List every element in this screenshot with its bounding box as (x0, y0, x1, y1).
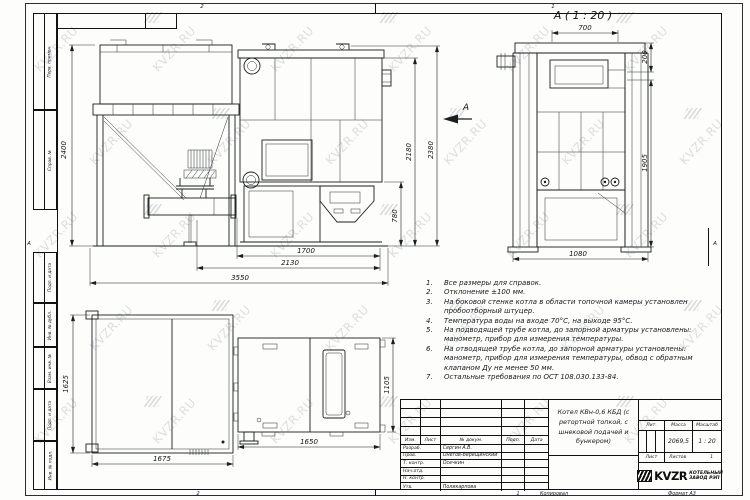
signature-row: Нач.отд. (401, 468, 548, 476)
dim-plan-bunker-height: 1625 (62, 375, 70, 393)
view-arrow: А (443, 103, 472, 124)
change-row (401, 418, 548, 427)
dim-body-height: 2180 (405, 143, 413, 161)
signature-row: Разраб.Сергин А.В. (401, 445, 548, 453)
mass-value: 2069,5 (665, 431, 693, 452)
role-label: Разраб. (401, 445, 441, 452)
change-row (401, 409, 548, 418)
note-text: На подводящей трубе котла, до запорной а… (444, 326, 706, 345)
role-label: Н. контр. (401, 476, 441, 483)
person-name: Осечкин (441, 460, 503, 467)
note-number: 4. (424, 317, 444, 326)
signature-header-row: Изм. Лист № докум. Подп. Дата (401, 436, 548, 445)
dim-detail-top-height: 200 (641, 50, 649, 64)
note-number: 2. (424, 288, 444, 297)
sheets-label: Листов (669, 455, 686, 460)
lit-cells (639, 431, 665, 452)
note-number: 1. (424, 279, 444, 288)
header-izm: Изм. (401, 436, 421, 444)
dim-mid-width: 2130 (281, 259, 299, 267)
note-item: 7.Остальные требования по ОСТ 108.030.13… (424, 373, 706, 382)
dim-bunker-height: 2400 (60, 141, 68, 159)
person-name: Сергин А.В. (441, 445, 503, 452)
role-label: Нач.отд. (401, 468, 441, 475)
sheet-row: Лист Листов 1 (639, 453, 721, 463)
dim-total-height: 2380 (427, 141, 435, 159)
note-text: Отклонение ±100 мм. (444, 288, 706, 297)
scale-value: 1 : 20 (693, 431, 721, 452)
mass-label: Масса (665, 421, 693, 430)
person-name (441, 476, 503, 483)
note-text: Все размеры для справок. (444, 279, 706, 288)
dim-body-width: 1700 (297, 247, 315, 255)
note-item: 3.На боковой стенке котла в области топо… (424, 298, 706, 317)
detail-view: А ( 1 : 20 ) (497, 9, 651, 252)
signature-row: Пров.Онегов-Верещинский (401, 453, 548, 461)
dim-total-width: 3550 (231, 274, 249, 282)
sheets-value: 1 (710, 455, 713, 460)
note-item: 4.Температура воды на входе 70°С, на вых… (424, 317, 706, 326)
note-item: 2.Отклонение ±100 мм. (424, 288, 706, 297)
dim-detail-top-width: 700 (578, 24, 592, 32)
lit-label: Лит. (639, 421, 665, 430)
title-block-right: Лит. Масса Масштаб 2069,5 1 : 20 Лист Ли… (639, 400, 721, 489)
note-text: Температура воды на входе 70°С, на выход… (444, 317, 706, 326)
signature-row: Н. контр. (401, 476, 548, 484)
company-name: КОТЕЛЬНЫЙ ЗАВОД РЭП (689, 471, 723, 482)
empty-strip (639, 400, 721, 421)
title-block: Изм. Лист № докум. Подп. Дата Разраб.Сер… (400, 399, 722, 490)
kvzr-logo-text: KVZR (654, 469, 687, 483)
title-block-middle: Котел КВн-0,6 КБД (с ретортной топкой, с… (549, 400, 639, 489)
dim-detail-bottom-width: 1080 (569, 250, 587, 258)
dim-plan-boiler-width: 1650 (300, 438, 318, 446)
note-text: На отводящей трубе котла, до запорной ар… (444, 345, 706, 373)
change-row (401, 400, 548, 409)
note-number: 7. (424, 373, 444, 382)
sheet-label: Лист (639, 453, 665, 462)
header-date: Дата (525, 436, 548, 444)
view-arrow-label: А (462, 103, 469, 113)
note-number: 5. (424, 326, 444, 345)
role-label: Утв. (401, 483, 441, 491)
scale-label: Масштаб (693, 421, 721, 430)
header-sign: Подп. (502, 436, 525, 444)
header-doc: № докум. (441, 436, 503, 444)
header-list: Лист (421, 436, 441, 444)
signature-row: Т. контр.Осечкин (401, 460, 548, 468)
front-view-dimensions: 2400 2380 2180 780 1700 2130 3550 (60, 45, 440, 286)
company-cell: KVZR КОТЕЛЬНЫЙ ЗАВОД РЭП (639, 463, 721, 489)
person-name (441, 468, 503, 475)
note-item: 1.Все размеры для справок. (424, 279, 706, 288)
dim-detail-side-height: 1905 (641, 154, 649, 172)
note-item: 6.На отводящей трубе котла, до запорной … (424, 345, 706, 373)
lit-mass-scale-values: 2069,5 1 : 20 (639, 431, 721, 453)
dim-ash-height: 780 (391, 209, 399, 223)
empty-cell (549, 456, 638, 489)
note-item: 5.На подводящей трубе котла, до запорной… (424, 326, 706, 345)
role-label: Пров. (401, 453, 441, 460)
technical-notes: 1.Все размеры для справок. 2.Отклонение … (424, 279, 706, 382)
dim-plan-bunker-width: 1675 (153, 455, 171, 463)
signature-row: Утв.Поликарпова (401, 483, 548, 491)
plan-view (86, 311, 385, 455)
note-text: На боковой стенке котла в области топочн… (444, 298, 706, 317)
drawing-title: Котел КВн-0,6 КБД (с ретортной топкой, с… (549, 400, 638, 456)
person-name: Онегов-Верещинский (441, 453, 503, 460)
note-number: 6. (424, 345, 444, 373)
detail-view-title: А ( 1 : 20 ) (553, 9, 612, 22)
note-number: 3. (424, 298, 444, 317)
role-label: Т. контр. (401, 460, 441, 467)
front-view (93, 40, 391, 246)
change-row (401, 427, 548, 436)
kvzr-logo-icon (637, 470, 652, 482)
company-name-line2: ЗАВОД РЭП (689, 476, 723, 482)
drawing-sheet: KVZR.RUKVZR.RUKVZR.RUKVZR.RUKVZR.RUKVZR.… (0, 0, 750, 500)
lit-mass-scale-header: Лит. Масса Масштаб (639, 421, 721, 431)
sheets-cell: Листов 1 (665, 453, 721, 462)
dim-plan-boiler-height: 1105 (383, 376, 391, 394)
title-block-signatures: Изм. Лист № докум. Подп. Дата Разраб.Сер… (401, 400, 549, 489)
person-name: Поликарпова (441, 483, 503, 491)
note-text: Остальные требования по ОСТ 108.030.133-… (444, 373, 706, 382)
